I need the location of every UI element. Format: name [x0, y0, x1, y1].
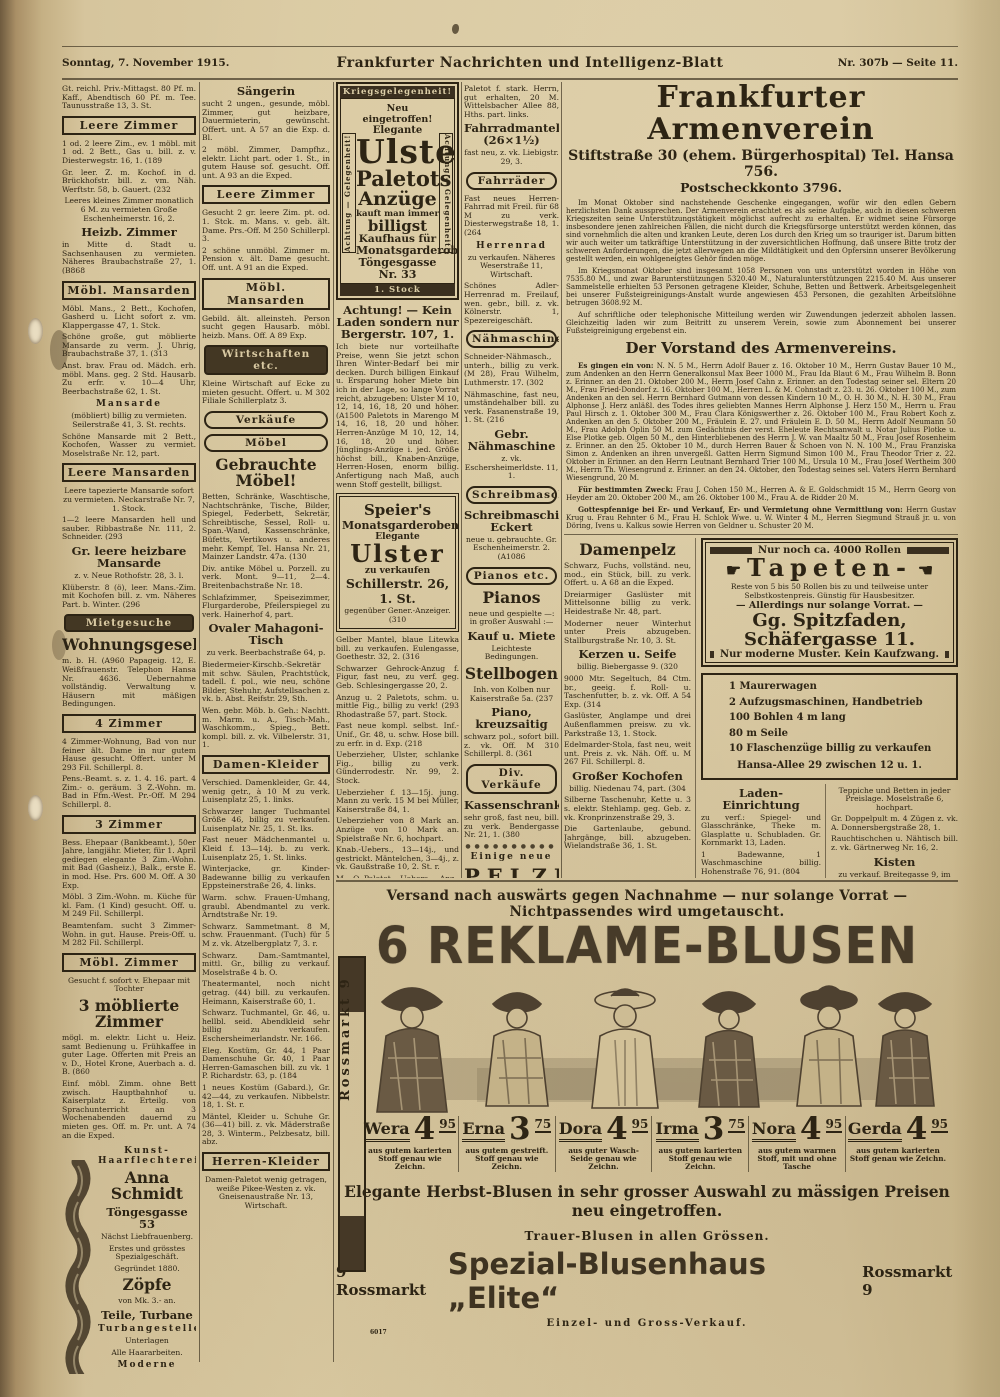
section-rule	[336, 880, 958, 882]
classified-ad-text: Erstes und grösstes Spezialgeschäft.	[98, 1245, 196, 1262]
classified-ad-text: zu verkauf. Breitegasse 9, im Hof, recht…	[831, 871, 958, 878]
blouse-price-erna: Erna375aus gutem gestreift. Stoff genau …	[458, 1116, 555, 1172]
ad-headline: Schreibmaschinen Eckert	[464, 509, 559, 533]
blouse-model-name: Nora	[752, 1119, 796, 1142]
classified-column-b: Laden-Einrichtungzu verf.: Spiegel- und …	[701, 784, 826, 879]
price-fraction: 75	[535, 1117, 552, 1133]
blouse-price-nora: Nora495aus gutem warmen Stoff, mit und o…	[748, 1116, 845, 1172]
section-header-lozenge: Fahrräder	[466, 172, 557, 190]
classified-ad-text: Möbl. 3 Zim.-Wohn. m. Küche für kl. Fam.…	[62, 893, 196, 919]
donor-paragraph: Für bestimmten Zweck: Frau J. Cohen 150 …	[566, 486, 956, 502]
classified-ad-text: Gesucht f. sofort v. Ehepaar mit Tochter	[62, 977, 196, 994]
classified-ad-text: Ueberzieher, Ulster, schlanke Fig., bill…	[336, 751, 459, 785]
section-header-box: 3 Zimmer	[62, 815, 196, 834]
section-header-lozenge: Möbel	[204, 434, 328, 452]
classified-column-3: Kriegsgelegenheit! Achtung — Gelegenheit…	[336, 82, 459, 878]
classified-ad-text: Bess. Ehepaar (Bankbeamt.), 50er Jahre, …	[62, 839, 196, 891]
classified-ad-text: Möbl. Mans., 2 Bett., Kochofen, Gasherd …	[62, 305, 196, 331]
ad-line: gegenüber Gener.-Anzeiger. (310	[342, 606, 453, 624]
equipment-line: 10 Flaschenzüge billig zu verkaufen	[707, 743, 952, 756]
masthead: Sonntag, 7. November 1915. Frankfurter N…	[62, 50, 958, 76]
price-fraction: 95	[931, 1117, 948, 1133]
classified-ad-text: Verschied. Damenkleider, Gr. 44, wenig g…	[202, 779, 330, 805]
column-rule	[561, 82, 562, 878]
blouse-model-name: Gerda	[848, 1119, 902, 1142]
classified-ad-text: Alle Haararbeiten.	[98, 1349, 196, 1358]
column-rule	[333, 82, 334, 1362]
classified-ad-text: Biedermeier-Kirschb.-Sekretär mit schw. …	[202, 661, 330, 704]
section-header-box: Leere Zimmer	[202, 185, 330, 204]
section-header-box: Damen-Kleider	[202, 755, 330, 774]
price-description: aus gutem gestreift. Stoff genau wie Zei…	[461, 1147, 553, 1172]
classified-ad-text: zu verk. Beerbachstraße 64, p.	[202, 649, 330, 658]
classified-ad-text: 4 Zimmer-Wohnung, Bad von nur feiner ält…	[62, 738, 196, 772]
classified-list: Gelber Mantel, blaue Litewka bill. zu ve…	[336, 636, 459, 878]
classified-ad-text: Schönes Adler-Herrenrad m. Freilauf, wen…	[464, 282, 559, 325]
classified-ad-text: fast neu, z. vk. Liebigstr. 29, 3.	[464, 149, 559, 166]
blouse-model-name: Irma	[656, 1119, 699, 1142]
classified-ad-text: Inh. von Kolben nur Kaiserstraße 5a. (23…	[464, 686, 559, 703]
ad-headline: Kassenschrank	[464, 799, 559, 811]
classified-column-c: Teppiche und Betten in jeder Preislage. …	[826, 784, 958, 879]
classified-ad-text: Paletot f. stark. Herrn, gut erhalten, 2…	[464, 85, 559, 119]
blouse-price-gerda: Gerda495aus gutem karierten Stoff genau …	[845, 1116, 950, 1172]
section-header-lozenge: Wirtschaften etc.	[204, 345, 328, 375]
section-header-box: Möbl. Mansarden	[202, 278, 330, 310]
donor-text: N. N. 5 M., Herrn Adolf Bauer z. 16. Okt…	[566, 361, 956, 482]
ad-line: Speier's	[342, 501, 453, 519]
ad-line: Nur moderne Muster. Kein Kaufzwang.	[720, 649, 939, 660]
classified-ad-text: Betten, Schränke, Waschtische, Nachtschr…	[202, 493, 330, 562]
ad-line: Schillerstr. 26, 1. St.	[342, 576, 453, 606]
issue-number: Nr. 307b — Seite 11.	[778, 57, 958, 69]
classified-ad-text: Fast neues Herren-Fahrrad mit Freil. für…	[464, 195, 559, 238]
classified-ad-text: Nähmaschine, fast neu, umständehalber bi…	[464, 391, 559, 425]
ad-headline: Gebrauchte Möbel!	[202, 457, 330, 489]
ad-headline: Stellbogen	[464, 666, 559, 682]
equipment-line: 80 m Seile	[707, 728, 952, 741]
ad-headline: Kisten	[831, 856, 958, 868]
ad-headline: PELZE	[464, 864, 559, 878]
classified-ad-text: von Mk. 3.- an.	[98, 1297, 196, 1306]
ad-headline: Damenpelz	[564, 542, 691, 558]
classified-ad-text: schwarz pol., sofort bill. z. vk. Off. M…	[464, 733, 559, 759]
hair-braid-illustration	[62, 1160, 94, 1374]
ad-line: Einzel- und Gross-Verkauf.	[336, 1318, 958, 1329]
ad-condition-line: Versand nach auswärts gegen Nachnahme — …	[336, 888, 958, 920]
classified-ad-text: Leichteste Bedingungen.	[464, 645, 559, 662]
reklame-blusen-ad: Rossmarkt 9 6017 Versand nach auswärts g…	[336, 884, 958, 1362]
classified-ad-text: Anst. brav. Frau od. Mädch. erh. möbl. M…	[62, 362, 196, 396]
classified-ad-text: 1 Badewanne, 1 Waschmaschine billig. Hoh…	[701, 851, 821, 877]
classified-ad-text: Gegründet 1880.	[98, 1265, 196, 1274]
ornament-row: ●●●●●●●●●●	[464, 843, 559, 850]
ad-subheadline: Moderne	[98, 1360, 196, 1370]
ad-subheadline: Herrenrad	[464, 241, 559, 251]
classified-ad-text: Div. antike Möbel u. Porzell. zu verk. M…	[202, 565, 330, 591]
ad-subheadline: Einige neue	[464, 852, 559, 862]
section-header-box: 4 Zimmer	[62, 714, 196, 733]
ad-side-band-right: Achtung — Gelegenheit!	[439, 133, 453, 253]
classified-list: Achtung! — Kein Laden sondern nur Berger…	[336, 304, 459, 489]
donor-paragraph: Gottespfennige bei Er- und Verkauf, Er- …	[566, 506, 956, 530]
ad-headline: Ovaler Mahagoni-Tisch	[202, 622, 330, 646]
classified-ad-text: zu verf.: Spiegel- und Glasschränke, The…	[701, 814, 821, 848]
ad-headline: Wohnungsgesellschaft	[62, 637, 196, 653]
price-whole: 4	[606, 1116, 628, 1142]
section-header-lozenge: Div. Verkäufe	[466, 764, 557, 794]
armenverein-paragraph: Auf schriftliche oder telephonische Mitt…	[566, 311, 956, 335]
decorative-bar	[945, 651, 949, 658]
classified-ad-text: z. v. Neue Rothofstr. 28, 3. l.	[62, 572, 196, 581]
classified-column-damenpelz: DamenpelzSchwarz, Fuchs, vollständ. neu,…	[564, 538, 696, 878]
classified-ad-text: Beamtenfam. sucht 3 Zimmer-Wohn. in gut.…	[62, 922, 196, 948]
section-header-box: Leere Zimmer	[62, 116, 196, 135]
ad-line: Trauer-Blusen in allen Grössen.	[336, 1229, 958, 1243]
classified-ad-text: zu verkaufen. Näheres Weserstraße 11, Wi…	[464, 254, 559, 280]
classified-ad-text: sucht 2 ungen., gesunde, möbl. Zimmer, g…	[202, 100, 330, 143]
ad-line: Töngesgasse Nr. 33	[356, 257, 439, 281]
price-whole: 3	[509, 1116, 531, 1142]
classified-ad-text: Schwarzer langer Tuchmantel Größe 46, bi…	[202, 808, 330, 834]
blouse-model-name: Wera	[364, 1119, 410, 1142]
ad-subheadline: Turbangestelle	[98, 1324, 196, 1334]
price-fraction: 75	[728, 1117, 745, 1133]
price-fraction: 95	[826, 1117, 843, 1133]
ad-text: Reste von 5 bis 50 Rollen bis zu und tei…	[710, 583, 949, 600]
classified-ad-text: 1—2 leere Mansarden hell und sauber. Rib…	[62, 516, 196, 542]
ad-headline: Kerzen u. Seife	[564, 648, 691, 660]
shop-name: Spezial-Blusenhaus „Elite“	[448, 1247, 846, 1315]
section-header-box: Möbl. Mansarden	[62, 281, 196, 300]
classified-ad-text: Ich biete nur vorteilhafte Preise, wenn …	[336, 343, 459, 489]
classified-ad-text: Gebild. ält. alleinsteh. Person sucht ge…	[202, 315, 330, 341]
ad-bottom-band: 1. Stock	[340, 284, 455, 296]
price-whole: 4	[800, 1116, 822, 1142]
classified-ad-text: Dreiarmiger Gaslüster mit Mittelsonne bi…	[564, 591, 691, 617]
classified-list: Laden-Einrichtungzu verf.: Spiegel- und …	[701, 787, 821, 879]
ad-side-band-left: Achtung — Gelegenheit!	[342, 133, 356, 253]
armenverein-paragraph: Im Kriegsmonat Oktober sind insgesamt 10…	[566, 267, 956, 307]
column-rule	[461, 82, 462, 878]
classified-ad-text: Leeres kleines Zimmer monatlich 6 M. zu …	[62, 197, 196, 223]
classified-list: Paletot f. stark. Herrn, gut erhalten, 2…	[464, 85, 559, 878]
classified-ad-text: neue u. gebrauchte. Gr. Eschenheimerstr.…	[464, 536, 559, 562]
speiers-ad: Speier's Monatsgarderoben Elegante Ulste…	[336, 493, 459, 632]
classified-ad-text: Knab.-Uebers., 13—14j., und gestrickt. M…	[336, 846, 459, 872]
section-header-lozenge: Verkäufe	[204, 411, 328, 429]
classified-ad-text: Gesucht 2 gr. leere Zim. pt. od. 1. Stck…	[202, 209, 330, 243]
classified-list: Sängerinsucht 2 ungen., gesunde, möbl. Z…	[202, 85, 330, 1210]
classified-ad-text: 2 möbl. Zimmer, Dampfhz., elektr. Licht …	[202, 146, 330, 180]
blouse-models-illustration	[357, 972, 937, 1114]
classified-ad-text: Winterjacke, gr. Kinder-Badewanne billig…	[202, 865, 330, 891]
classified-column-4: Paletot f. stark. Herrn, gut erhalten, 2…	[464, 82, 559, 878]
ad-line: billigst	[356, 219, 439, 234]
ink-smudge	[452, 24, 459, 34]
classified-ad-text: m. b. H. (A960 Papageig. 12, E. Weißfrau…	[62, 657, 196, 709]
armenverein-board-line: Der Vorstand des Armenvereins.	[566, 339, 956, 357]
classified-list: DamenpelzSchwarz, Fuchs, vollständ. neu,…	[564, 542, 691, 851]
section-header-box: Leere Mansarden	[62, 463, 196, 482]
ad-headline: Großer Kochofen	[564, 770, 691, 782]
price-fraction: 95	[439, 1117, 456, 1133]
ad-headline: Laden-Einrichtung	[701, 787, 821, 811]
classified-ad-text: Edelmarder-Stola, fast neu, weit unt. Pr…	[564, 741, 691, 767]
ad-headline: Teile, Turbane	[98, 1309, 196, 1321]
classified-ad-text: Gt. reichl. Priv.-Mittagst. 80 Pf. m. Ka…	[62, 85, 196, 111]
ad-business-name: Gg. Spitzfaden, Schäfergasse 11.	[710, 611, 949, 649]
ad-headline: Kavalier-Haarketten	[98, 1373, 196, 1374]
classified-ad-text: (möbliert) billig zu vermieten. Seilerst…	[62, 412, 196, 429]
price-whole: 3	[703, 1116, 725, 1142]
price-fraction: 95	[632, 1117, 649, 1133]
right-section: Frankfurter Armenverein Stiftstraße 30 (…	[564, 82, 958, 878]
blouse-price-irma: Irma375aus gutem karierten Stoff genau w…	[651, 1116, 748, 1172]
classified-ad-text: Teppiche und Betten in jeder Preislage. …	[831, 787, 958, 813]
classified-ad-text: Schöne Mansarde mit 2 Bett., Kochofen, W…	[62, 433, 196, 459]
section-header-lozenge: Nähmaschinen	[466, 330, 557, 348]
shop-address-right: Rossmarkt 9	[862, 1263, 958, 1299]
classified-ad-text: Warm. schw. Frauen-Umhang, graubl. Abend…	[202, 894, 330, 920]
ad-subheadline: Mansarde	[62, 399, 196, 409]
equipment-line: 2 Aufzugsmaschinen, Handbetrieb	[707, 697, 952, 710]
classified-ad-text: Anzug u. 2 Paletots, schm. u. mittle Fig…	[336, 694, 459, 720]
classified-ad-text: 2 schöne unmöbl. Zimmer m. Pension v. äl…	[202, 247, 330, 273]
blouse-price-row: Wera495aus gutem karierten Stoff genau w…	[362, 1116, 950, 1172]
classified-ad-text: Wen. gebr. Möb. b. Geh.: Nachtt. m. Marm…	[202, 707, 330, 750]
donor-lead: Kleidungsstücke, Schuhe, Betten und Bett…	[578, 533, 824, 534]
armenverein-account: Postscheckkonto 3796.	[566, 180, 956, 195]
classified-ad-text: in Mitte d. Stadt u. Sachsenhausen zu ve…	[62, 241, 196, 275]
armenverein-title: Frankfurter Armenverein	[566, 82, 956, 146]
price-description: aus gutem warmen Stoff, mit und ohne Tas…	[751, 1147, 843, 1172]
classified-ad-text: Klüberstr. 8 (ö), leer. Mans.-Zim. mit K…	[62, 584, 196, 610]
equipment-line: Hansa-Allee 29 zwischen 12 u. 1.	[707, 759, 952, 772]
issue-date: Sonntag, 7. November 1915.	[62, 57, 282, 69]
classified-ad-text: Mäntel, Kleider u. Schuhe Gr. (36—41) bi…	[202, 1113, 330, 1147]
classified-ad-text: Moderner neuer Winterhut unter Preis abz…	[564, 620, 691, 646]
classified-ad-text: Gr. Doppelpult m. 4 Zügen z. vk. A. Donn…	[831, 815, 958, 832]
price-description: aus gutem karierten Stoff genau wie Zeic…	[848, 1147, 948, 1163]
ad-headline: Anna Schmidt	[98, 1170, 196, 1202]
classified-ad-text: Rauchtischchen u. Nähtisch bill. z. vk. …	[831, 835, 958, 852]
binding-stitch	[28, 318, 43, 344]
classified-ad-text: Damen-Paletot wenig getragen, weiße Pike…	[202, 1176, 330, 1210]
armenverein-paragraph: Im Monat Oktober sind nachstehende Gesch…	[566, 199, 956, 263]
decorative-bar	[710, 651, 714, 658]
armenverein-address: Stiftstraße 30 (ehem. Bürgerhospital) Te…	[566, 148, 956, 180]
ad-headline: Zöpfe	[98, 1277, 196, 1293]
classified-ad-text: Schwarz, Fuchs, vollständ. neu, mod., ei…	[564, 562, 691, 588]
classified-ad-text: Schöne große, gut möblierte Mansarde zu …	[62, 333, 196, 359]
section-header-lozenge: Mietgesuche	[64, 614, 194, 632]
section-header-lozenge: Pianos etc.	[466, 567, 557, 585]
classified-ad-text: Ueberzieher f. 13—15j. jung. Mann zu ver…	[336, 789, 459, 815]
price-description: aus gutem karierten Stoff genau wie Zeic…	[364, 1147, 456, 1172]
classified-ad-text: Eleg. Kostüm, Gr. 44, 1 Paar Damenschuhe…	[202, 1047, 330, 1081]
ad-headline: Töngesgasse 53	[98, 1206, 196, 1230]
blouse-price-wera: Wera495aus gutem karierten Stoff genau w…	[362, 1116, 458, 1172]
classified-ad-text: Ueberzieher von 8 Mark an. Anzüge von 10…	[336, 817, 459, 843]
ad-headline: Pianos	[464, 590, 559, 606]
ad-headline: Kauf u. Miete	[464, 630, 559, 642]
ad-headline: Tapeten-	[747, 553, 912, 582]
newspaper-page: Sonntag, 7. November 1915. Frankfurter N…	[0, 0, 1000, 1397]
classified-ad-text: Schneider-Nähmasch., unterh., billig zu …	[464, 353, 559, 387]
pointing-hand-icon	[912, 553, 933, 582]
ad-headline: Sängerin	[202, 85, 330, 97]
section-header-box: Möbl. Zimmer	[62, 953, 196, 972]
donor-paragraph: Es gingen ein von: N. N. 5 M., Herrn Ado…	[566, 362, 956, 482]
price-whole: 4	[906, 1116, 928, 1142]
classified-ad-text: 9000 Mtr. Segeltuch, 84 Ctm. br., geeig.…	[564, 675, 691, 709]
ad-line: Neu eingetroffen!	[356, 103, 439, 125]
ad-line: Elegante Herbst-Blusen in sehr grosser A…	[336, 1182, 958, 1220]
equipment-line: 100 Bohlen 4 m lang	[707, 712, 952, 725]
ad-headline: Achtung! — Kein Laden sondern nur Berger…	[336, 304, 459, 340]
classified-ad-text: Silberne Taschenuhr, Kette u. 3 s. elekt…	[564, 796, 691, 822]
classified-ad-text: Schwarzer Gehrock-Anzug f. Figur, fast n…	[336, 665, 459, 691]
ad-headline: Gr. leere heizbare Mansarde	[62, 545, 196, 569]
classified-ad-text: Fast neue kompl. selbst. Inf.-Unif., Gr.…	[336, 722, 459, 748]
classified-column-1: Gt. reichl. Priv.-Mittagst. 80 Pf. m. Ka…	[62, 82, 196, 1374]
classified-ad-text: billig. Biebergasse 9. (320	[564, 663, 691, 672]
ad-headline: Piano, kreuzsaitig	[464, 706, 559, 730]
classified-ad-text: neue und gespielte —: in großer Auswahl …	[464, 610, 559, 627]
column-rule	[199, 82, 200, 1362]
blouse-model-name: Dora	[559, 1119, 602, 1142]
section-header-box: Herren-Kleider	[202, 1152, 330, 1171]
classified-ad-text: Gaslüster, Anglampe und drei Außenflamme…	[564, 712, 691, 738]
classified-ad-text: 1 neues Kostüm (Gabard.), Gr. 42—44, zu …	[202, 1084, 330, 1110]
blouse-price-dora: Dora495aus guter Wasch-Seide genau wie Z…	[555, 1116, 652, 1172]
classified-ad-text: sehr groß, fast neu, bill. zu verk. Bend…	[464, 814, 559, 840]
classified-ad-text: Gelber Mantel, blaue Litewka bill. zu ve…	[336, 636, 459, 662]
print-number: 6017	[370, 1329, 387, 1336]
ad-headline: Heizb. Zimmer	[62, 226, 196, 238]
price-description: aus gutem karierten Stoff genau wie Zeic…	[654, 1147, 746, 1172]
classified-ad-text: 1 od. 2 leere Zim., ev. 1 möbl. mit 1 od…	[62, 140, 196, 166]
pointing-hand-icon	[726, 553, 747, 582]
classified-ad-text: Nächst Liebfrauenberg.	[98, 1233, 196, 1242]
classified-list: Teppiche und Betten in jeder Preislage. …	[831, 787, 958, 879]
equipment-line: 1 Maurerwagen	[707, 681, 952, 694]
classified-ad-text: z. vk. Eschersheimerldste. 11, 1.	[464, 455, 559, 481]
ad-headline: 6 REKLAME-BLUSEN	[336, 920, 958, 974]
price-whole: 4	[414, 1116, 436, 1142]
classified-ad-text: M. O.-Paletot, Uebers., Anz., Waschgarni…	[336, 875, 459, 878]
classified-column-2: Sängerinsucht 2 ungen., gesunde, möbl. Z…	[202, 82, 330, 1374]
ad-headline: Anzüge	[356, 189, 439, 209]
ad-headline: Ulster	[356, 136, 439, 168]
ulster-paletots-ad: Kriegsgelegenheit! Achtung — Gelegenheit…	[336, 82, 459, 300]
anna-schmidt-ad: Kunst-HaarflechtereiAnna SchmidtTöngesga…	[62, 1146, 196, 1374]
classified-ad-text: Fast neuer Mädchenmantel u. Kleid f. 13—…	[202, 836, 330, 862]
ad-headline: 3 möblierte Zimmer	[62, 998, 196, 1030]
ad-subheadline: Kunst-Haarflechterei	[98, 1146, 196, 1166]
classified-ad-text: Schlafzimmer, Speisezimmer, Flurgarderob…	[202, 594, 330, 620]
ad-headline: Gebr. Nähmaschine	[464, 428, 559, 452]
classified-ad-text: Kleine Wirtschaft auf Ecke zu mieten ges…	[202, 380, 330, 406]
classified-ad-text: Die Gartenlaube, gebund. Jahrgänge, bill…	[564, 825, 691, 851]
classified-ad-text: Unterlagen	[98, 1337, 196, 1346]
ad-headline: Fahrradmantel (26×1½)	[464, 122, 559, 146]
anna-schmidt-ad-body: Kunst-HaarflechtereiAnna SchmidtTöngesga…	[98, 1146, 196, 1374]
classified-ad-text: mögl. m. elektr. Licht u. Heiz. samt Bed…	[62, 1034, 196, 1077]
newspaper-title: Frankfurter Nachrichten und Intelligenz-…	[282, 55, 778, 71]
classified-ad-text: Schwarz. Tuchmantel, Gr. 46, u. hellbl. …	[202, 1009, 330, 1043]
equipment-lines: 1 Maurerwagen2 Aufzugsmaschinen, Handbet…	[707, 681, 952, 772]
section-header-lozenge: Schreibmaschinen	[466, 486, 557, 504]
masthead-rule-bottom	[62, 78, 958, 80]
tapeten-ad: Nur noch ca. 4000 Rollen Tapeten- Reste …	[701, 538, 958, 667]
ad-line: Monatsgarderoben	[342, 519, 453, 532]
blouse-model-name: Erna	[462, 1119, 505, 1142]
classified-ad-text: Einf. möbl. Zimm. ohne Bett zwisch. Haup…	[62, 1080, 196, 1140]
classified-ad-text: Schwarz. Dam.-Samtmantel, mittl. Gr., bi…	[202, 952, 330, 978]
ad-headline: Paletots	[356, 168, 439, 189]
ad-headline: Ulster	[342, 542, 453, 566]
armenverein-notice: Frankfurter Armenverein Stiftstraße 30 (…	[564, 82, 958, 534]
ad-top-band: Kriegsgelegenheit!	[340, 86, 455, 98]
classified-list: Gt. reichl. Priv.-Mittagst. 80 Pf. m. Ka…	[62, 85, 196, 1140]
classified-ad-text: Schwarz. Sammetmant. 8 M, schw. Frauenma…	[202, 923, 330, 949]
masthead-rule-top	[62, 46, 958, 47]
classified-ad-text: Gr. leer. Z. m. Kochof. in d. Brückhofst…	[62, 169, 196, 195]
classified-ad-text: billig. Niedenau 74, part. (304	[564, 785, 691, 794]
price-description: aus guter Wasch-Seide genau wie Zeichn.	[558, 1147, 650, 1172]
classified-ad-text: Theatermantel, noch nicht getrag. (44) b…	[202, 980, 330, 1006]
equipment-sale-ad: 1 Maurerwagen2 Aufzugsmaschinen, Handbet…	[701, 673, 958, 780]
classified-ad-text: Pens.-Beamt. s. z. 1. 4. 16. part. 4 Zim…	[62, 775, 196, 809]
binding-stitch	[28, 795, 43, 821]
classified-ad-text: Leere tapezierte Mansarde sofort zu verm…	[62, 487, 196, 513]
